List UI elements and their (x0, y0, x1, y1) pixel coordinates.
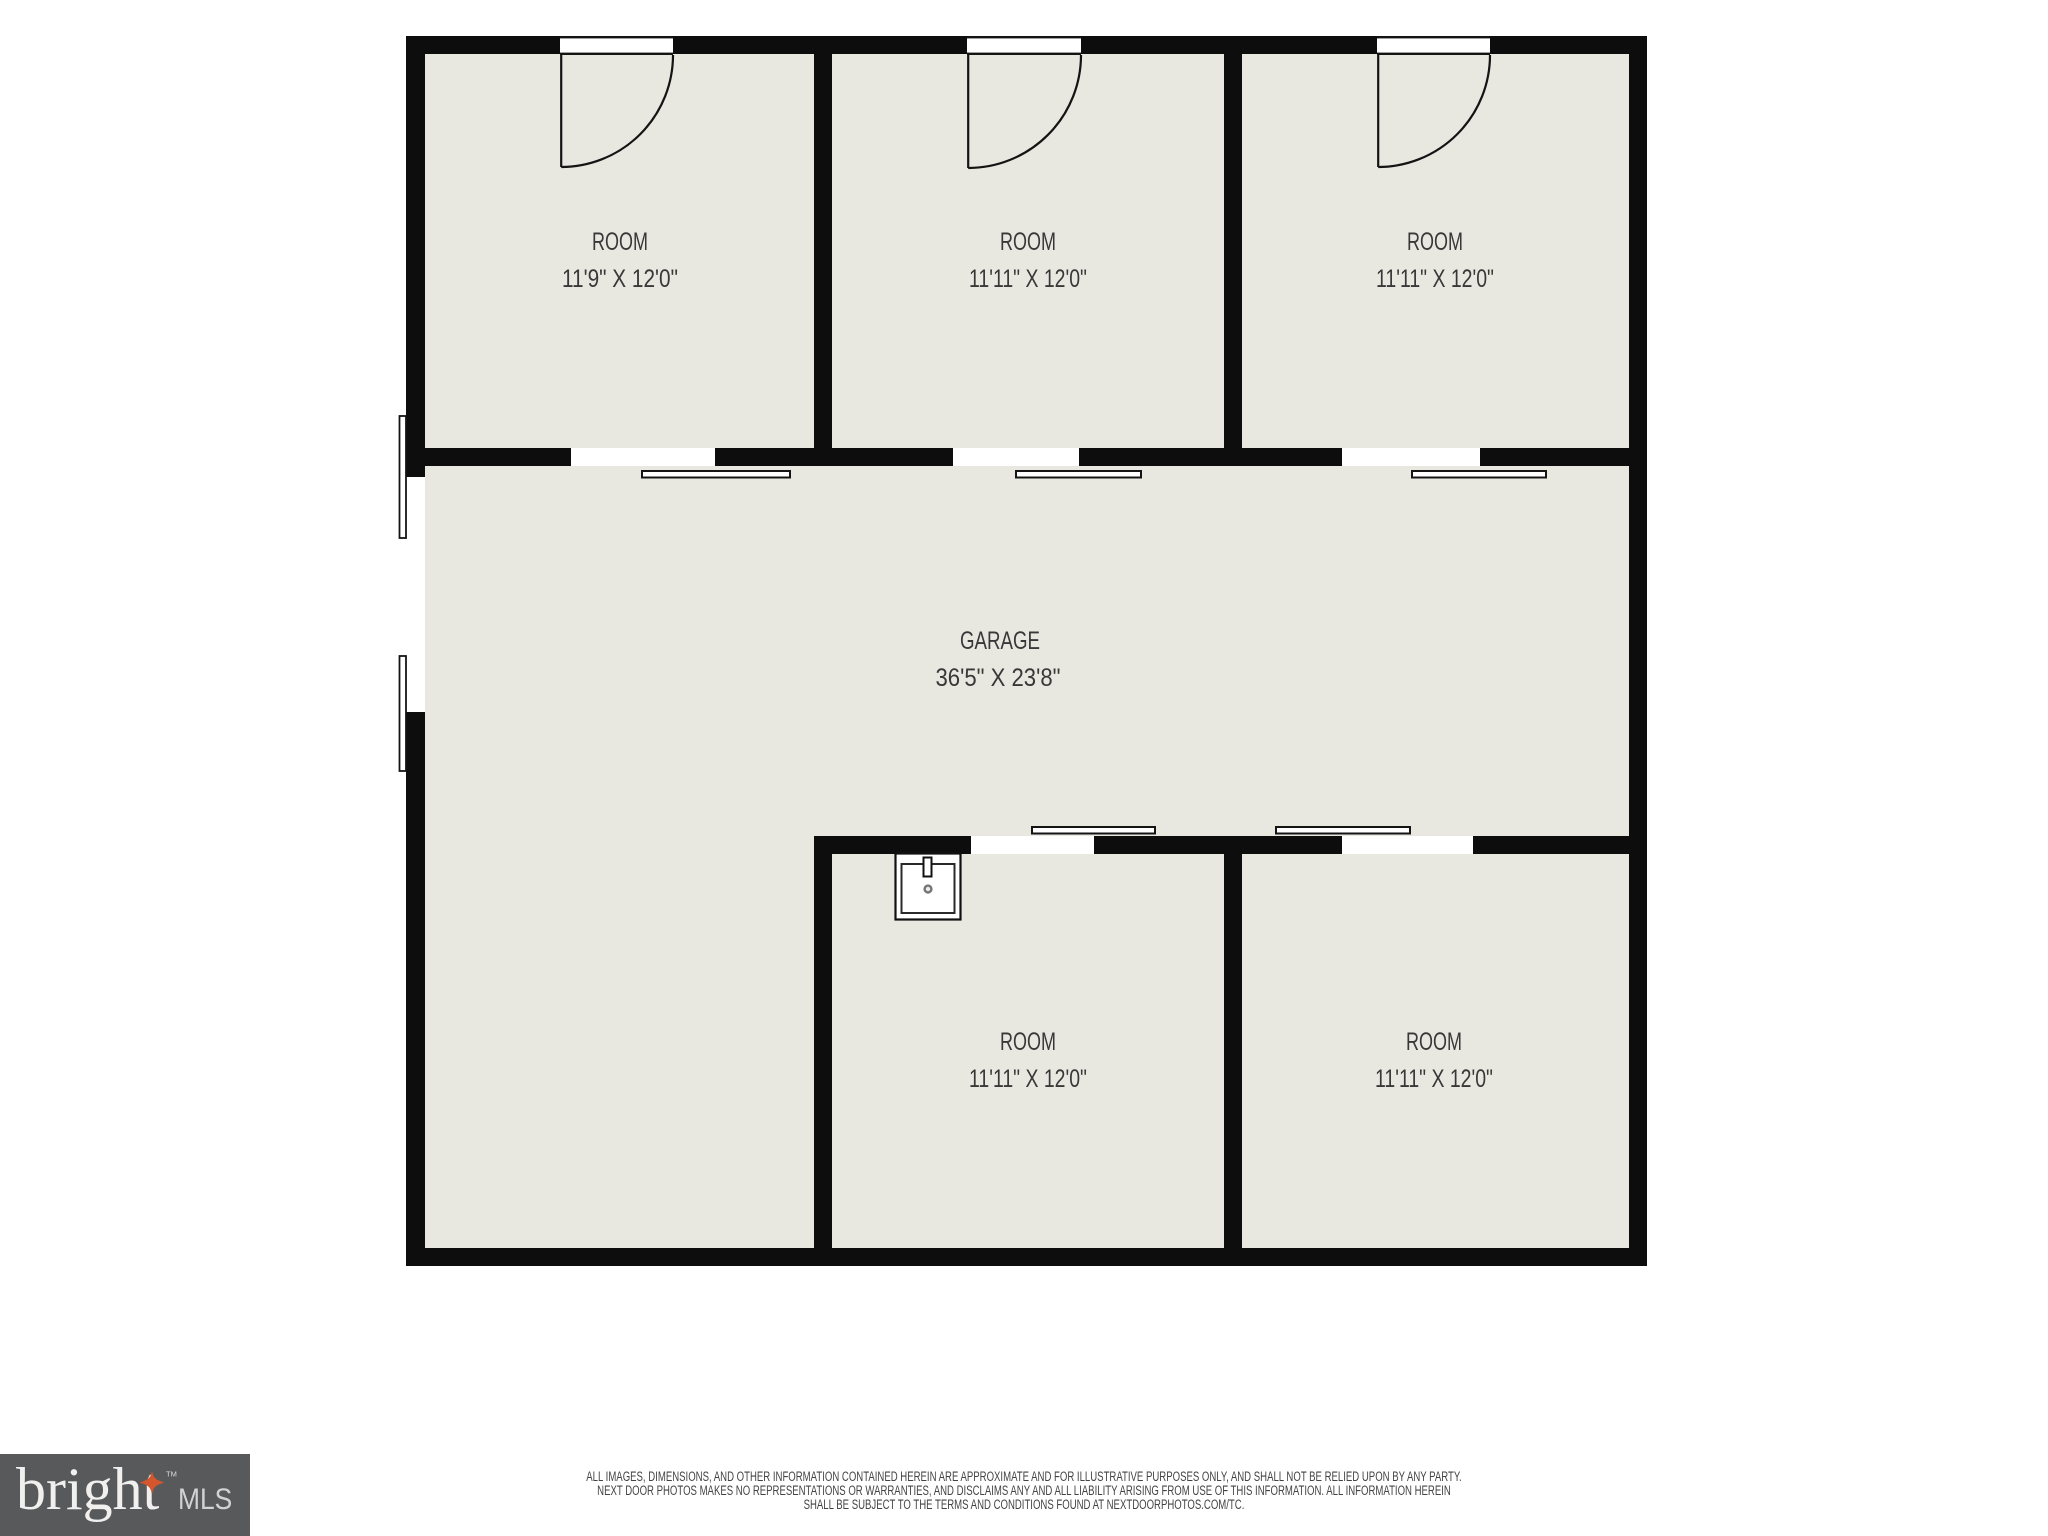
svg-text:11'11" X 12'0": 11'11" X 12'0" (1375, 1065, 1493, 1093)
svg-text:ROOM: ROOM (1407, 227, 1463, 256)
svg-text:36'5" X 23'8": 36'5" X 23'8" (936, 665, 1061, 693)
svg-text:TM: TM (166, 1470, 177, 1479)
svg-text:11'11" X 12'0": 11'11" X 12'0" (1376, 265, 1494, 293)
svg-text:SHALL BE SUBJECT TO THE TERMS: SHALL BE SUBJECT TO THE TERMS AND CONDIT… (804, 1496, 1245, 1512)
svg-text:11'9" X 12'0": 11'9" X 12'0" (562, 264, 678, 292)
svg-text:bright: bright (16, 1456, 160, 1522)
svg-text:GARAGE: GARAGE (960, 626, 1040, 654)
svg-text:11'11" X 12'0": 11'11" X 12'0" (969, 265, 1087, 293)
svg-text:ROOM: ROOM (1406, 1027, 1462, 1056)
svg-text:MLS: MLS (178, 1481, 232, 1515)
svg-text:11'11" X 12'0": 11'11" X 12'0" (969, 1065, 1087, 1093)
svg-text:ROOM: ROOM (592, 227, 648, 256)
svg-text:ROOM: ROOM (1000, 1027, 1056, 1056)
svg-text:ROOM: ROOM (1000, 227, 1056, 256)
